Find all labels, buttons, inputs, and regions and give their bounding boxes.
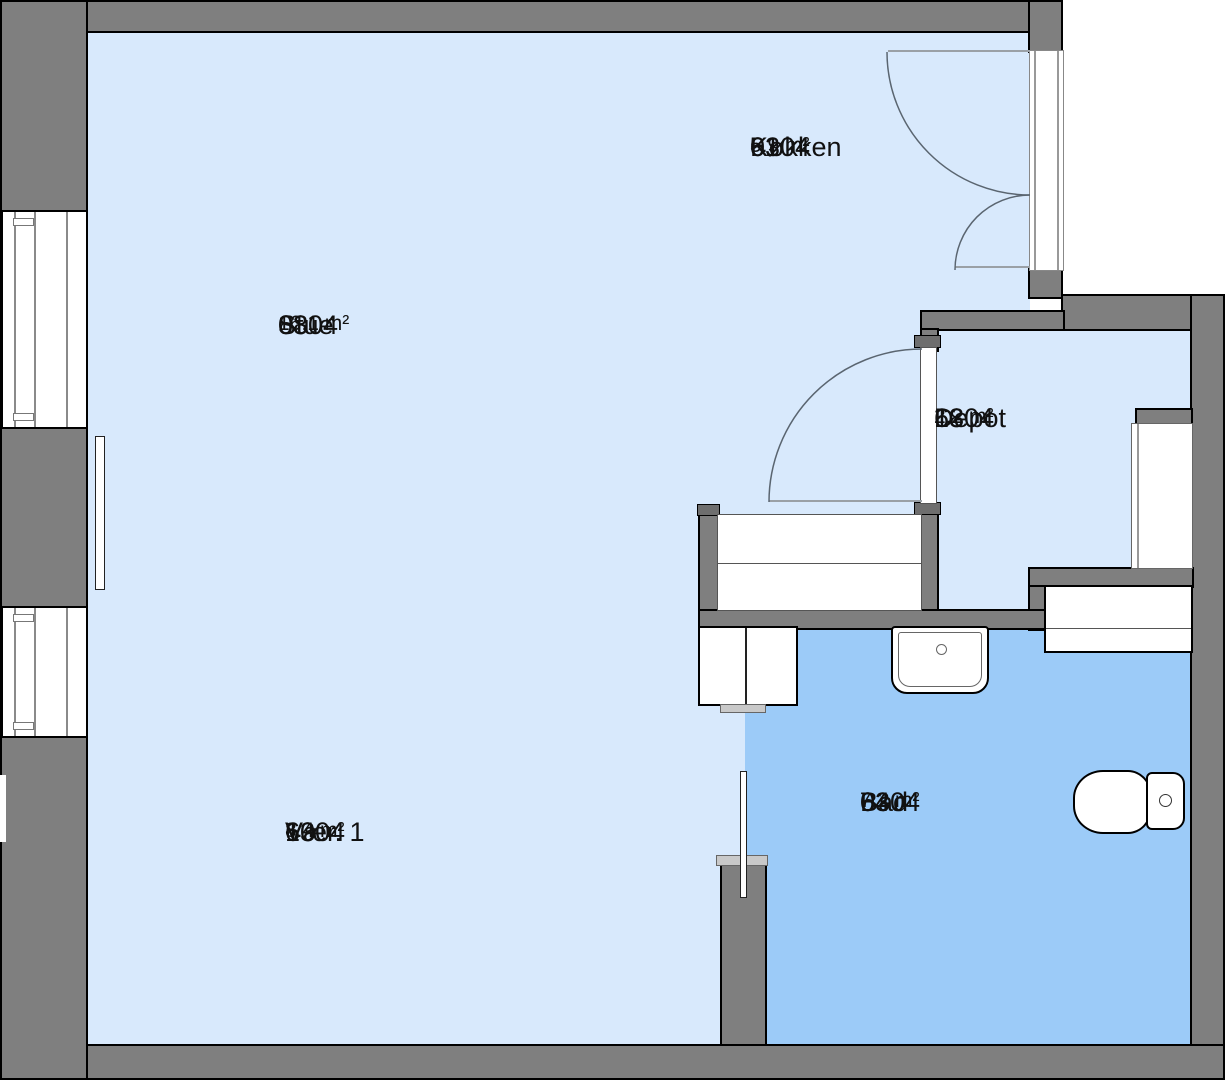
toilet-bowl — [1073, 770, 1152, 834]
wall-left — [0, 0, 88, 1080]
window-frame-line — [66, 212, 68, 427]
toilet-flush-button — [1159, 794, 1172, 807]
window-frame-line — [34, 608, 36, 736]
door-frame-line — [1057, 51, 1059, 270]
builtin-counter-lower — [717, 563, 922, 611]
window-sash-tick — [13, 722, 34, 730]
wall-left-exterior-notch — [0, 775, 6, 842]
wall-bottom — [86, 1044, 1225, 1080]
room-area: 8.4 m² — [285, 818, 345, 843]
door-leaf-open-line — [769, 500, 922, 502]
washer-cabinet — [1044, 585, 1193, 653]
room-area: 16.1 m² — [278, 311, 349, 336]
cabinet-divider — [745, 628, 747, 704]
door-leaf-open-line — [888, 50, 1030, 52]
window-frame-line — [14, 212, 16, 427]
wall-door-sill-block — [1028, 267, 1063, 299]
window-frame-line — [14, 608, 16, 736]
window-sash-tick — [13, 614, 34, 622]
window-sash-tick — [13, 218, 34, 226]
cabinet-plinth — [720, 704, 766, 713]
sink — [891, 626, 989, 694]
depot-corridor-door — [1131, 423, 1193, 569]
window-sash-tick — [13, 413, 34, 421]
wall-right — [1190, 294, 1225, 1080]
wall-top — [0, 0, 1063, 33]
bath-door-leaf — [740, 771, 747, 898]
door-frame-line — [1137, 424, 1139, 568]
french-door-frame — [1029, 50, 1064, 271]
toilet-tank — [1146, 772, 1185, 830]
wall-depot-top — [920, 310, 1065, 331]
window-upper — [1, 210, 88, 429]
door-leaf-open-line — [955, 266, 1030, 268]
bath-cabinet — [698, 626, 798, 706]
room-area: 7.2 m² — [860, 788, 920, 813]
cabinet-divider — [1046, 628, 1191, 629]
room-area: 5.9 m² — [750, 133, 810, 158]
floor-plan: 6304 01 Køkken 5.9 m² 6304 08 Stue 16.1 … — [0, 0, 1225, 1080]
builtin-counter-upper — [717, 514, 922, 565]
sink-drain — [936, 644, 947, 655]
sink-basin — [898, 632, 982, 687]
radiator — [95, 436, 105, 590]
window-lower — [1, 606, 88, 738]
window-frame-line — [66, 608, 68, 736]
window-frame-line — [34, 212, 36, 427]
room-area: 2.2 m² — [934, 404, 994, 429]
door-frame-line — [1034, 51, 1036, 270]
wall-door-head-block — [1028, 0, 1063, 53]
